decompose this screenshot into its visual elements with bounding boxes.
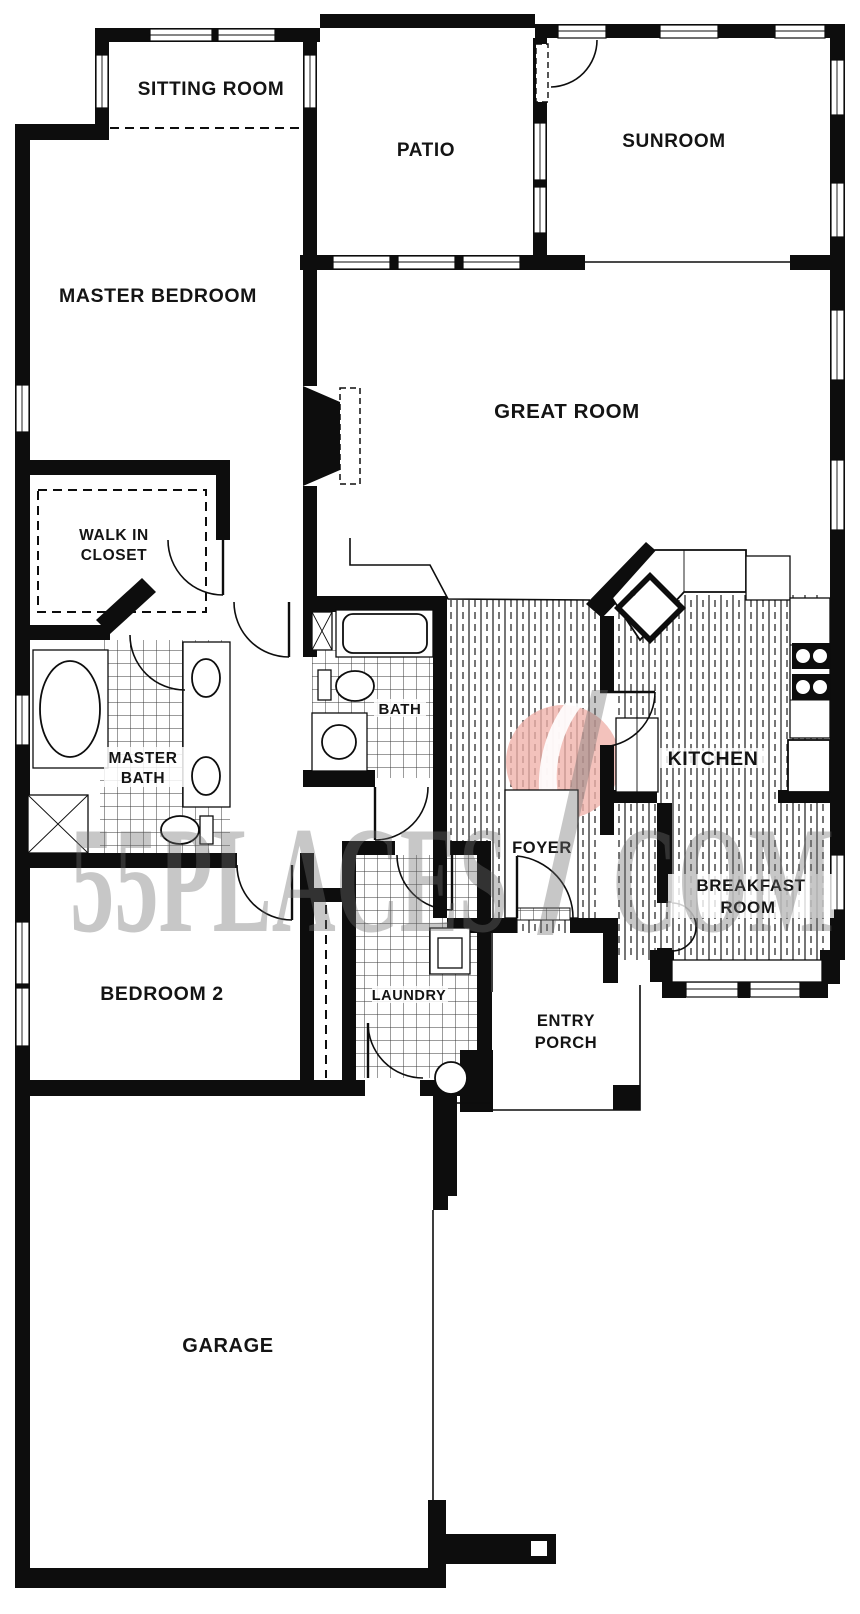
window <box>150 29 212 41</box>
window <box>534 123 546 180</box>
label-kitchen: KITCHEN <box>668 748 759 770</box>
window <box>463 256 520 269</box>
label-master-bedroom: MASTER BEDROOM <box>59 285 257 307</box>
window <box>534 187 546 233</box>
window <box>831 60 844 115</box>
label-patio: PATIO <box>397 140 455 161</box>
watermark-text-left: 55PLACES <box>70 796 508 964</box>
bath-vanity <box>312 713 367 771</box>
master-bath-tub <box>33 650 108 768</box>
window <box>16 385 29 432</box>
window <box>686 982 738 997</box>
refrigerator <box>788 740 830 792</box>
label-sitting-room: SITTING ROOM <box>138 79 285 100</box>
label-master-bath-1: MASTER <box>108 750 177 767</box>
window <box>750 982 800 997</box>
window <box>333 256 390 269</box>
label-master-bath-2: BATH <box>121 770 165 787</box>
label-entry-porch-2: PORCH <box>535 1034 598 1052</box>
bath-tub <box>336 610 433 657</box>
window <box>16 695 29 745</box>
window <box>831 310 844 380</box>
label-garage: GARAGE <box>182 1335 273 1357</box>
window <box>660 25 718 38</box>
window <box>558 25 606 38</box>
floor-plan: SITTING ROOM PATIO SUNROOM MASTER BEDROO… <box>0 0 860 1614</box>
label-bedroom2: BEDROOM 2 <box>100 983 224 1005</box>
porch-post <box>613 1085 640 1110</box>
label-sunroom: SUNROOM <box>622 131 725 152</box>
media-niche-dashed <box>340 388 360 484</box>
window <box>775 25 825 38</box>
watermark-text-right: COM <box>612 796 834 964</box>
label-walk-in-closet-1: WALK IN <box>79 527 149 544</box>
master-bath-vanity <box>183 642 230 807</box>
window <box>16 988 29 1046</box>
label-great-room: GREAT ROOM <box>494 400 640 423</box>
window <box>398 256 455 269</box>
label-laundry: LAUNDRY <box>372 988 447 1004</box>
label-bath: BATH <box>379 701 422 718</box>
window <box>16 922 29 984</box>
stoop-post <box>531 1541 547 1556</box>
window <box>831 183 844 237</box>
bath-chase <box>312 612 332 650</box>
laundry-sink <box>435 1062 467 1094</box>
window <box>831 460 844 530</box>
label-walk-in-closet-2: CLOSET <box>81 547 147 564</box>
window <box>218 29 275 41</box>
floor-plan-canvas: SITTING ROOM PATIO SUNROOM MASTER BEDROO… <box>0 0 860 1614</box>
label-entry-porch-1: ENTRY <box>537 1012 595 1030</box>
sunroom-door-leaf <box>536 44 548 102</box>
pantry-cabinet <box>616 718 658 792</box>
window <box>96 55 108 108</box>
bath-toilet <box>318 670 374 701</box>
media-niche-wall <box>303 386 340 486</box>
window <box>304 55 316 108</box>
